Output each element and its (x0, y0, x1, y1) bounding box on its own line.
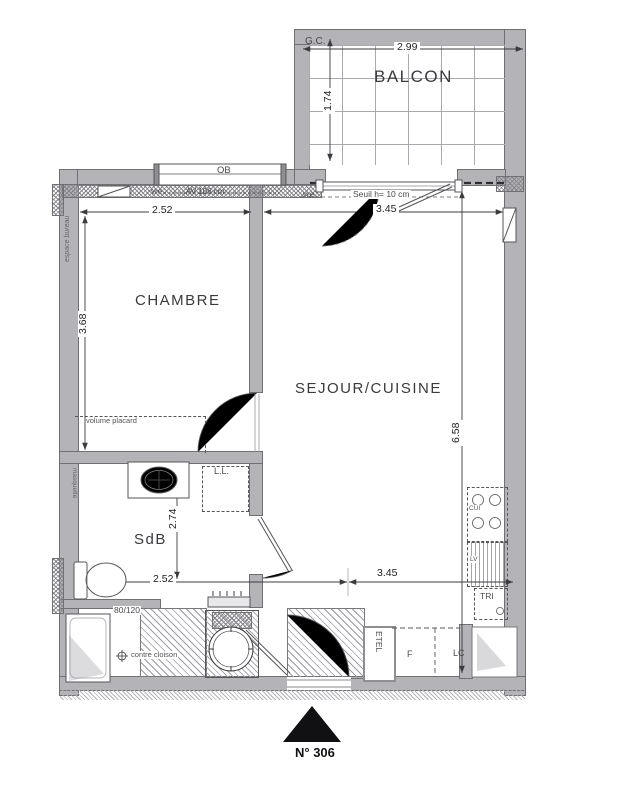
vre-bedroom-label: vre (151, 188, 162, 197)
plan-linework (0, 0, 621, 800)
hall-width-dim: 3.45 (374, 568, 400, 580)
balcony-width-dim: 2.99 (394, 42, 420, 54)
bedroom-room-label: CHAMBRE (135, 293, 221, 310)
bath-depth-dim: 2.74 (168, 506, 180, 532)
gc-label: G.C. (305, 36, 326, 47)
lc-label: LC (453, 649, 465, 659)
dishwasher-label: LV (470, 556, 477, 563)
balcony-room-label: BALCON (374, 68, 453, 87)
sill-height-label: AV 106 cm (186, 188, 225, 197)
washing-machine-label: L.L. (214, 467, 229, 477)
desk-space-label: espace bureau (64, 216, 72, 262)
shower-size-label: 80/120 (113, 606, 141, 615)
bath-width-dim: 2.52 (150, 574, 176, 586)
vre-living-label: vre (303, 191, 314, 200)
bath-room-label: SdB (134, 532, 167, 549)
apartment-number-label: N° 306 (295, 746, 335, 760)
hob-label: CUI (469, 505, 480, 512)
partition-label: contre cloison (130, 651, 178, 659)
threshold-label: Seuil h= 10 cm (351, 190, 411, 199)
bedroom-width-dim: 2.52 (149, 205, 175, 217)
floor-plan: G.C. 2.99 BALCON 1.74 OB vre AV 106 cm v… (0, 0, 621, 800)
closet-volume-label: volume placard (86, 417, 137, 425)
ob-window-label: OB (217, 166, 231, 176)
bedroom-depth-dim: 3.68 (78, 311, 90, 337)
fridge-label: F (407, 650, 413, 660)
wall-finish-label: masquette (71, 468, 78, 498)
electrical-panel-label: ETEL (374, 631, 383, 652)
living-depth-dim: 6.58 (451, 420, 463, 446)
living-width-top-dim: 3.45 (373, 204, 399, 216)
sorting-label: TRI (480, 592, 494, 601)
living-room-label: SEJOUR/CUISINE (295, 381, 442, 398)
balcony-depth-dim: 1.74 (323, 88, 335, 114)
